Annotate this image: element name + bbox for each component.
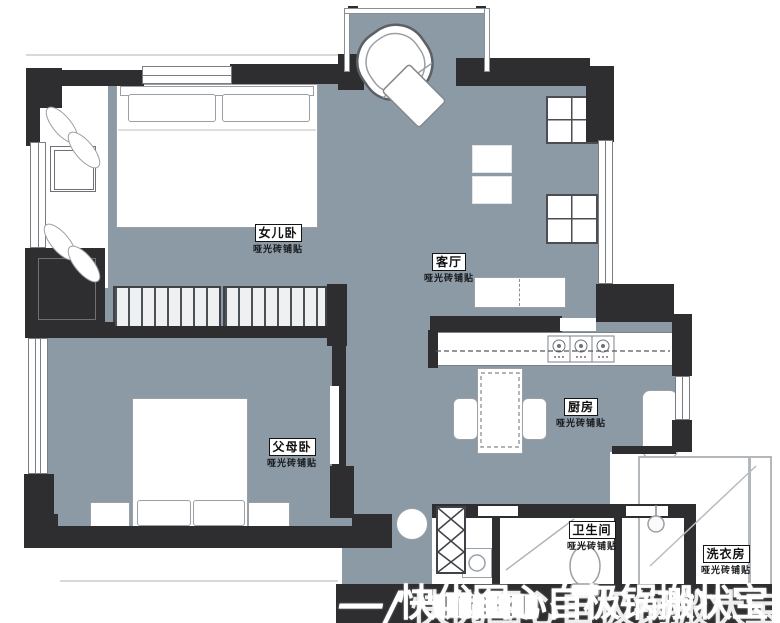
room-finish: 哑光砖铺贴 bbox=[556, 418, 606, 430]
room-finish: 哑光砖铺贴 bbox=[424, 273, 474, 285]
plant-leaves-top bbox=[41, 102, 105, 172]
room-name: 客厅 bbox=[432, 253, 466, 271]
room-name: 厨房 bbox=[564, 398, 598, 416]
room-finish: 哑光砖铺贴 bbox=[567, 541, 617, 553]
room-name: 洗衣房 bbox=[702, 545, 749, 563]
room-name: 卫生间 bbox=[568, 521, 615, 539]
label-kitchen: 厨房 哑光砖铺贴 bbox=[556, 398, 606, 430]
watermark-text-echo: 快优图心自极锅搬状宝 bbox=[411, 578, 780, 623]
label-living-room: 客厅 哑光砖铺贴 bbox=[424, 253, 474, 285]
label-daughter-bedroom: 女儿卧 哑光砖铺贴 bbox=[253, 224, 303, 256]
watermark-prefix: 一/ bbox=[332, 572, 406, 623]
room-name: 女儿卧 bbox=[254, 224, 301, 242]
plan-linework bbox=[0, 0, 780, 623]
room-name: 父母卧 bbox=[268, 438, 315, 456]
pendant-lamp-icon bbox=[648, 505, 664, 532]
dining-table-dashed-inset bbox=[481, 373, 519, 447]
floor-plan: 女儿卧 哑光砖铺贴 客厅 哑光砖铺贴 父母卧 哑光砖铺贴 厨房 哑光砖铺贴 卫生… bbox=[0, 0, 780, 623]
room-finish: 哑光砖铺贴 bbox=[267, 458, 317, 470]
shaft-x-braces bbox=[438, 508, 464, 572]
plant-leaves-bottom bbox=[39, 219, 105, 286]
label-bathroom: 卫生间 哑光砖铺贴 bbox=[567, 521, 617, 553]
label-parents-bedroom: 父母卧 哑光砖铺贴 bbox=[267, 438, 317, 470]
shower-diagonal bbox=[506, 519, 574, 570]
room-finish: 哑光砖铺贴 bbox=[253, 244, 303, 256]
washbasin-bowl bbox=[469, 555, 485, 571]
